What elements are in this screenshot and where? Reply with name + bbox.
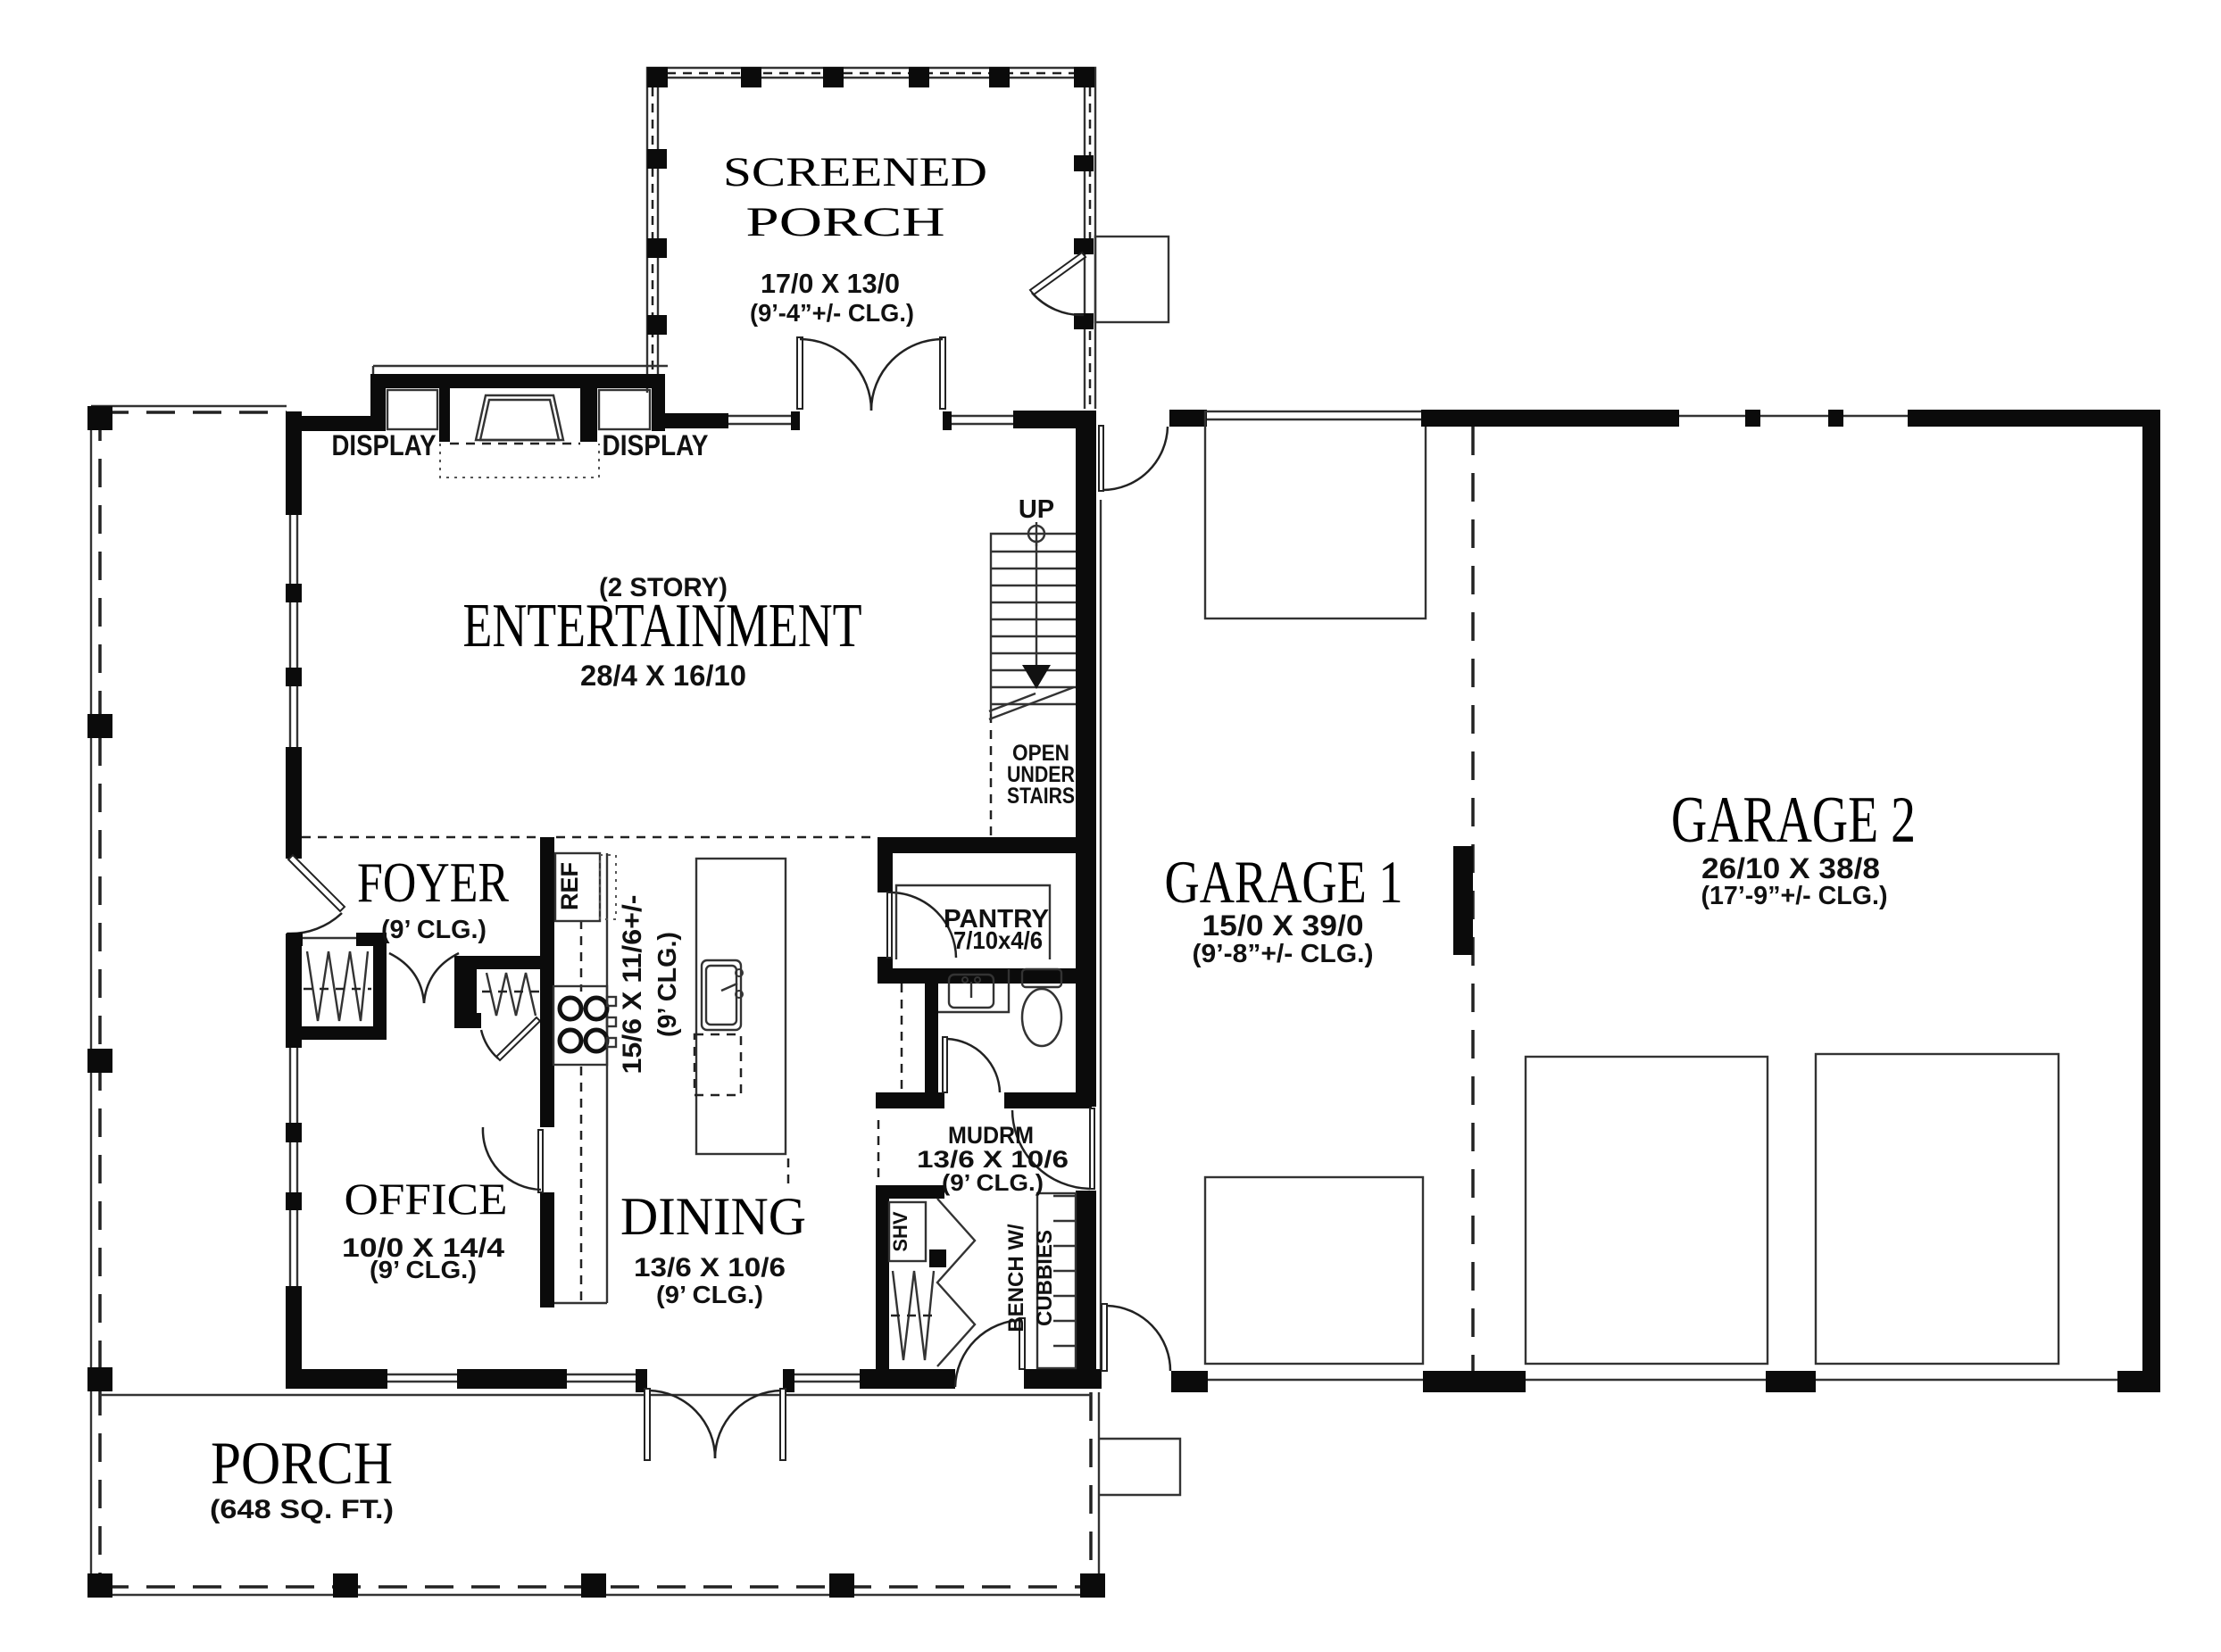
svg-text:REF: REF — [556, 862, 583, 910]
svg-text:SHV: SHV — [889, 1211, 911, 1252]
svg-text:(648 SQ. FT.): (648 SQ. FT.) — [210, 1495, 394, 1524]
svg-text:BENCH W/: BENCH W/ — [1004, 1224, 1028, 1332]
svg-text:STAIRS: STAIRS — [1007, 784, 1075, 809]
svg-text:(9’-8”+/- CLG.): (9’-8”+/- CLG.) — [1193, 940, 1374, 968]
svg-text:28/4 X 16/10: 28/4 X 16/10 — [580, 660, 746, 692]
svg-text:MUDRM: MUDRM — [948, 1122, 1034, 1149]
svg-text:(9’ CLG.): (9’ CLG.) — [370, 1256, 477, 1283]
svg-text:(17’-9”+/- CLG.): (17’-9”+/- CLG.) — [1701, 882, 1888, 910]
svg-text:(9’ CLG.): (9’ CLG.) — [381, 916, 487, 944]
svg-text:15/6 X 11/6+/-: 15/6 X 11/6+/- — [618, 895, 647, 1075]
svg-text:UP: UP — [1019, 495, 1054, 524]
svg-text:(9’ CLG.): (9’ CLG.) — [656, 1281, 763, 1308]
svg-text:PORCH: PORCH — [746, 199, 945, 245]
svg-text:26/10 X 38/8: 26/10 X 38/8 — [1701, 852, 1880, 884]
svg-text:GARAGE 1: GARAGE 1 — [1165, 848, 1403, 916]
svg-text:FOYER: FOYER — [357, 851, 509, 914]
svg-text:(9’-4”+/- CLG.): (9’-4”+/- CLG.) — [750, 299, 914, 327]
svg-text:CUBBIES: CUBBIES — [1033, 1230, 1057, 1326]
svg-text:17/0 X 13/0: 17/0 X 13/0 — [761, 268, 900, 299]
svg-text:13/6 X 10/6: 13/6 X 10/6 — [634, 1253, 786, 1283]
svg-text:DISPLAY: DISPLAY — [332, 429, 437, 461]
svg-text:15/0 X 39/0: 15/0 X 39/0 — [1202, 909, 1364, 942]
svg-text:ENTERTAINMENT: ENTERTAINMENT — [463, 592, 862, 660]
svg-text:SCREENED: SCREENED — [723, 149, 987, 195]
svg-text:DINING: DINING — [620, 1187, 806, 1246]
svg-text:(9’ CLG.): (9’ CLG.) — [653, 932, 682, 1037]
svg-text:OFFICE: OFFICE — [345, 1174, 508, 1224]
svg-text:7/10x4/6: 7/10x4/6 — [953, 926, 1043, 954]
svg-text:DISPLAY: DISPLAY — [603, 429, 709, 461]
svg-text:(9’ CLG.): (9’ CLG.) — [942, 1169, 1044, 1196]
svg-text:GARAGE 2: GARAGE 2 — [1671, 784, 1916, 857]
svg-text:PORCH: PORCH — [211, 1429, 393, 1497]
